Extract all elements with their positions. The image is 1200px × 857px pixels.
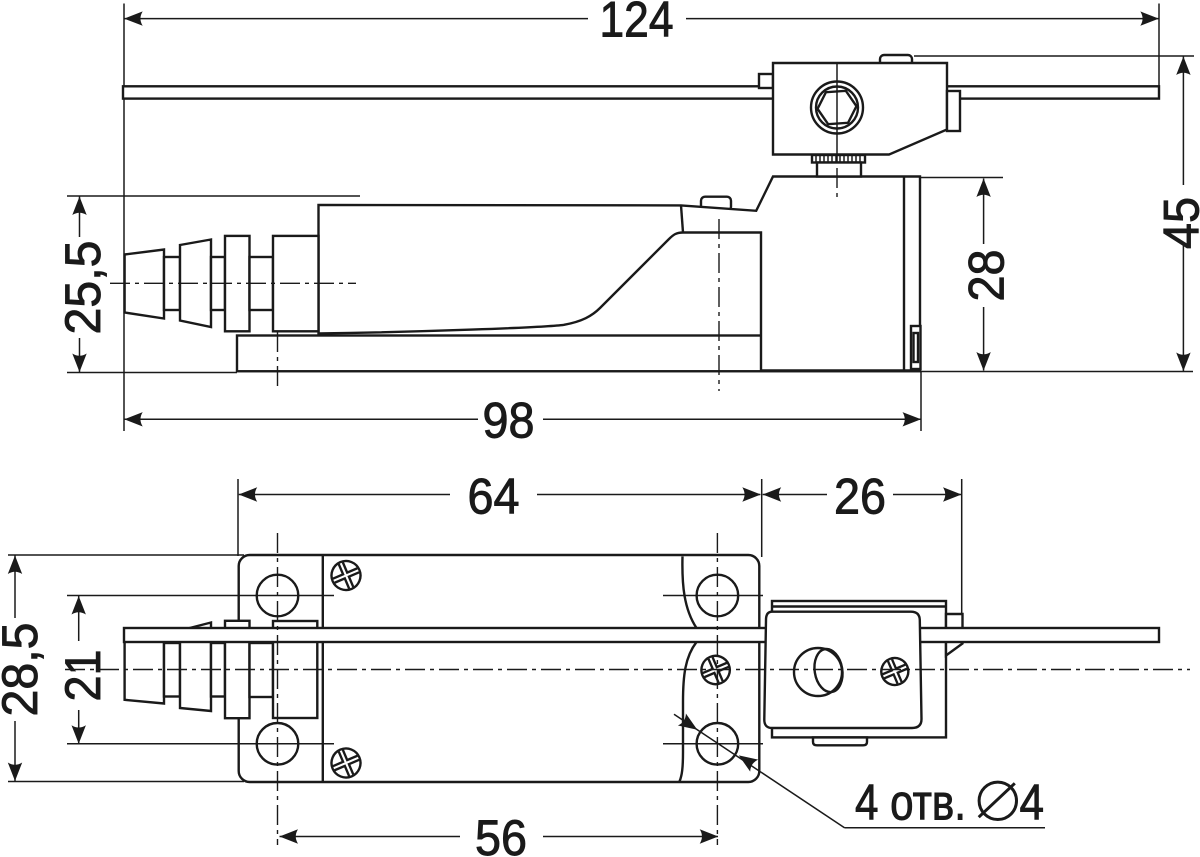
svg-text:124: 124 [600, 0, 674, 47]
svg-text:4: 4 [1020, 775, 1045, 831]
svg-text:28,5: 28,5 [0, 623, 48, 717]
svg-text:28: 28 [959, 250, 1015, 302]
svg-text:21: 21 [55, 650, 111, 702]
svg-text:56: 56 [475, 810, 527, 857]
svg-text:25,5: 25,5 [55, 241, 111, 335]
svg-text:98: 98 [483, 393, 535, 449]
svg-text:26: 26 [834, 469, 886, 525]
svg-text:45: 45 [1154, 197, 1200, 249]
svg-text:4 отв.: 4 отв. [855, 775, 966, 831]
svg-text:64: 64 [468, 469, 520, 525]
